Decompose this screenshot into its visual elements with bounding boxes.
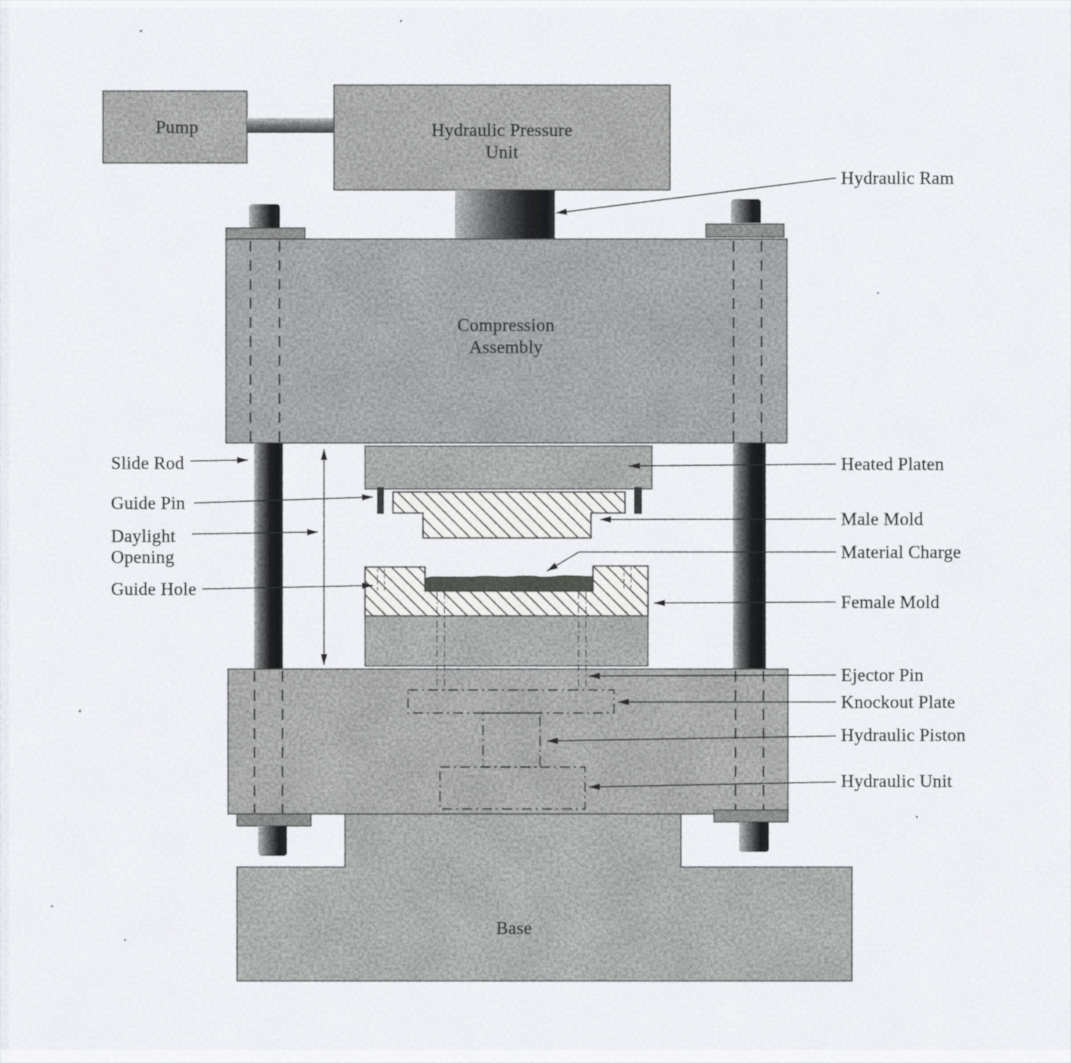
svg-text:Ejector Pin: Ejector Pin [841, 665, 924, 685]
svg-text:Knockout Plate: Knockout Plate [841, 692, 955, 712]
svg-text:Pump: Pump [156, 117, 199, 137]
svg-text:Guide Pin: Guide Pin [111, 493, 185, 513]
svg-text:Hydraulic Pressure: Hydraulic Pressure [431, 120, 572, 140]
svg-text:Material Charge: Material Charge [841, 542, 961, 562]
svg-text:Compression: Compression [457, 315, 554, 335]
svg-text:Female Mold: Female Mold [841, 592, 940, 612]
svg-text:Unit: Unit [486, 142, 519, 162]
svg-text:Guide Hole: Guide Hole [111, 579, 196, 599]
svg-text:Heated Platen: Heated Platen [841, 454, 944, 474]
svg-text:Hydraulic Piston: Hydraulic Piston [841, 725, 966, 745]
svg-text:Slide Rod: Slide Rod [111, 453, 184, 473]
svg-text:Male Mold: Male Mold [841, 509, 923, 529]
svg-text:Daylight: Daylight [111, 526, 176, 546]
svg-text:Base: Base [496, 918, 532, 938]
svg-text:Opening: Opening [111, 547, 174, 567]
svg-text:Hydraulic Ram: Hydraulic Ram [841, 168, 954, 188]
svg-text:Assembly: Assembly [469, 337, 543, 357]
svg-text:Hydraulic Unit: Hydraulic Unit [841, 771, 952, 791]
